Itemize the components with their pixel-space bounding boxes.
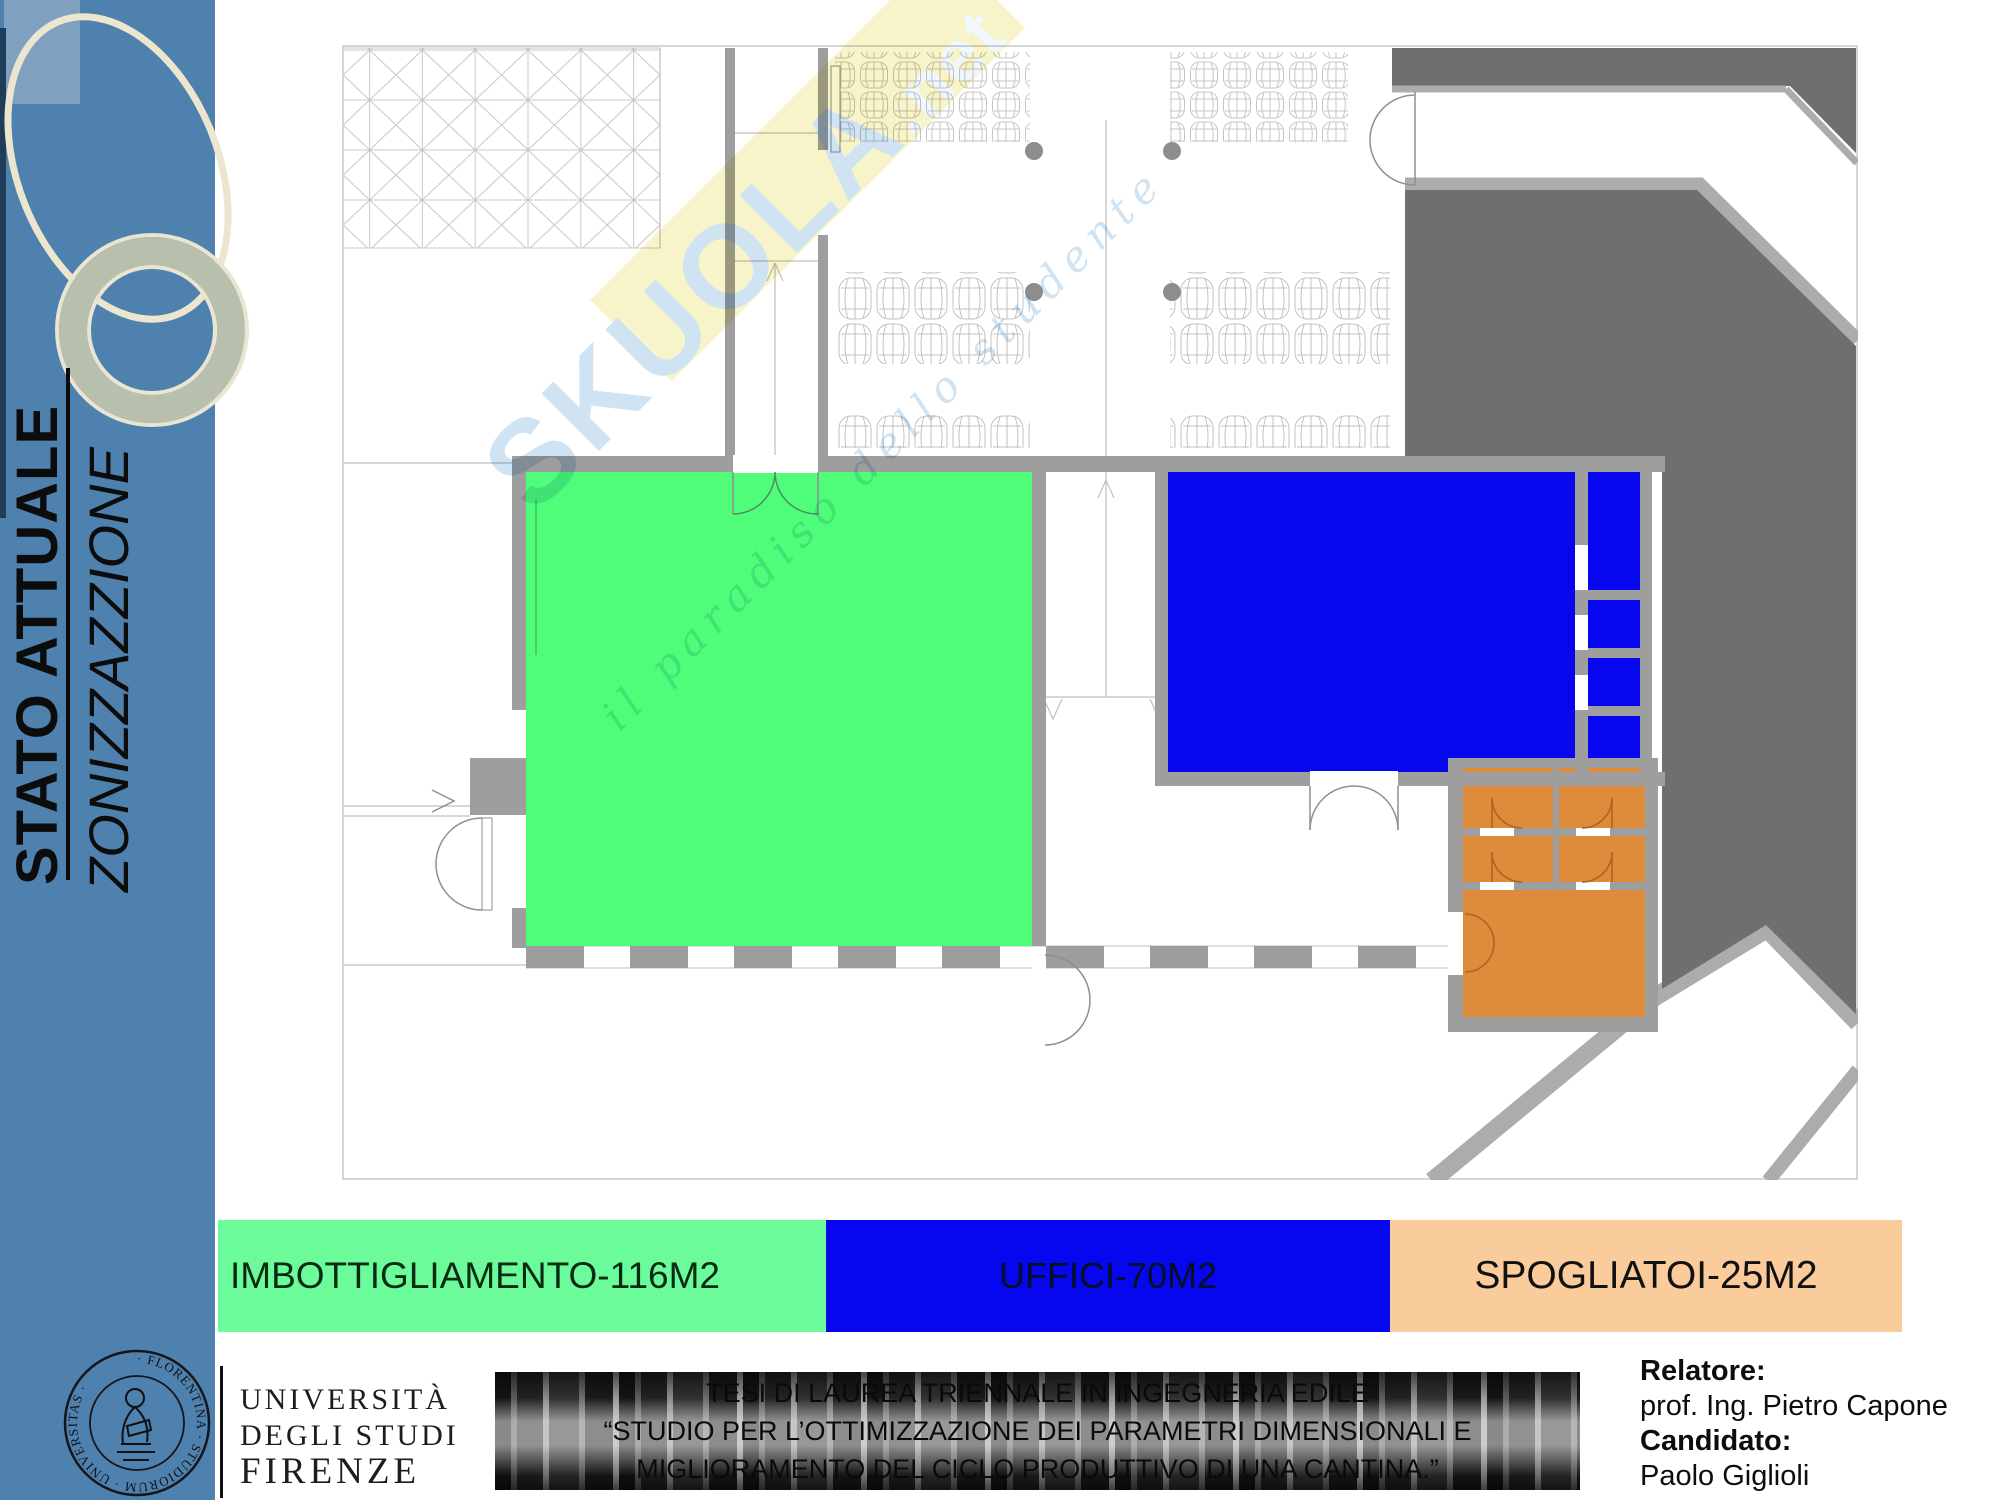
university-line1: UNIVERSITÀ [240,1382,459,1418]
thesis-line2: “STUDIO PER L’OTTIMIZZAZIONE DEI PARAMET… [495,1412,1580,1450]
candidato-name: Paolo Giglioli [1640,1459,1948,1494]
zone-imbottigliamento [526,472,1032,946]
legend-imbottigliamento-label: IMBOTTIGLIAMENTO-116M2 [230,1255,720,1297]
floor-plan [342,45,1858,1180]
relatore-label: Relatore: [1640,1354,1948,1389]
sidebar-accent-square [4,0,80,104]
zone-uffici [1168,470,1575,786]
legend-uffici: UFFICI-70M2 [826,1220,1390,1332]
zone-uffici-rooms [1588,470,1640,786]
university-name: UNIVERSITÀ DEGLI STUDI FIRENZE [240,1382,459,1490]
page-subtitle: ZONIZZAZZIONE [76,362,141,892]
footer-divider [220,1366,223,1498]
legend-spogliatoi-label: SPOGLIATOI-25M2 [1474,1254,1817,1298]
title-underline [66,368,70,880]
thesis-line1: TESI DI LAUREA TRIENNALE IN INGEGNERIA E… [495,1374,1580,1412]
page-title: STATO ATTUALE [4,365,71,885]
university-line2: DEGLI STUDI [240,1418,459,1454]
legend-imbottigliamento: IMBOTTIGLIAMENTO-116M2 [218,1220,838,1332]
hatched-area [343,48,660,248]
legend-spogliatoi: SPOGLIATOI-25M2 [1390,1220,1902,1332]
university-seal: · FLORENTINA · STUDIORUM · UNIVERSITAS · [55,1346,219,1500]
legend-uffici-label: UFFICI-70M2 [999,1255,1217,1297]
thesis-line3: MIGLIORAMENTO DEL CICLO PRODUTTIVO DI UN… [495,1450,1580,1488]
thesis-title-banner: TESI DI LAUREA TRIENNALE IN INGEGNERIA E… [495,1372,1580,1490]
slide: STATO ATTUALE ZONIZZAZZIONE [0,0,2000,1500]
relatore-name: prof. Ing. Pietro Capone [1640,1389,1948,1424]
credits: Relatore: prof. Ing. Pietro Capone Candi… [1640,1354,1948,1494]
candidato-label: Candidato: [1640,1424,1948,1459]
university-line3: FIRENZE [240,1454,459,1490]
seal-figure [117,1389,155,1460]
